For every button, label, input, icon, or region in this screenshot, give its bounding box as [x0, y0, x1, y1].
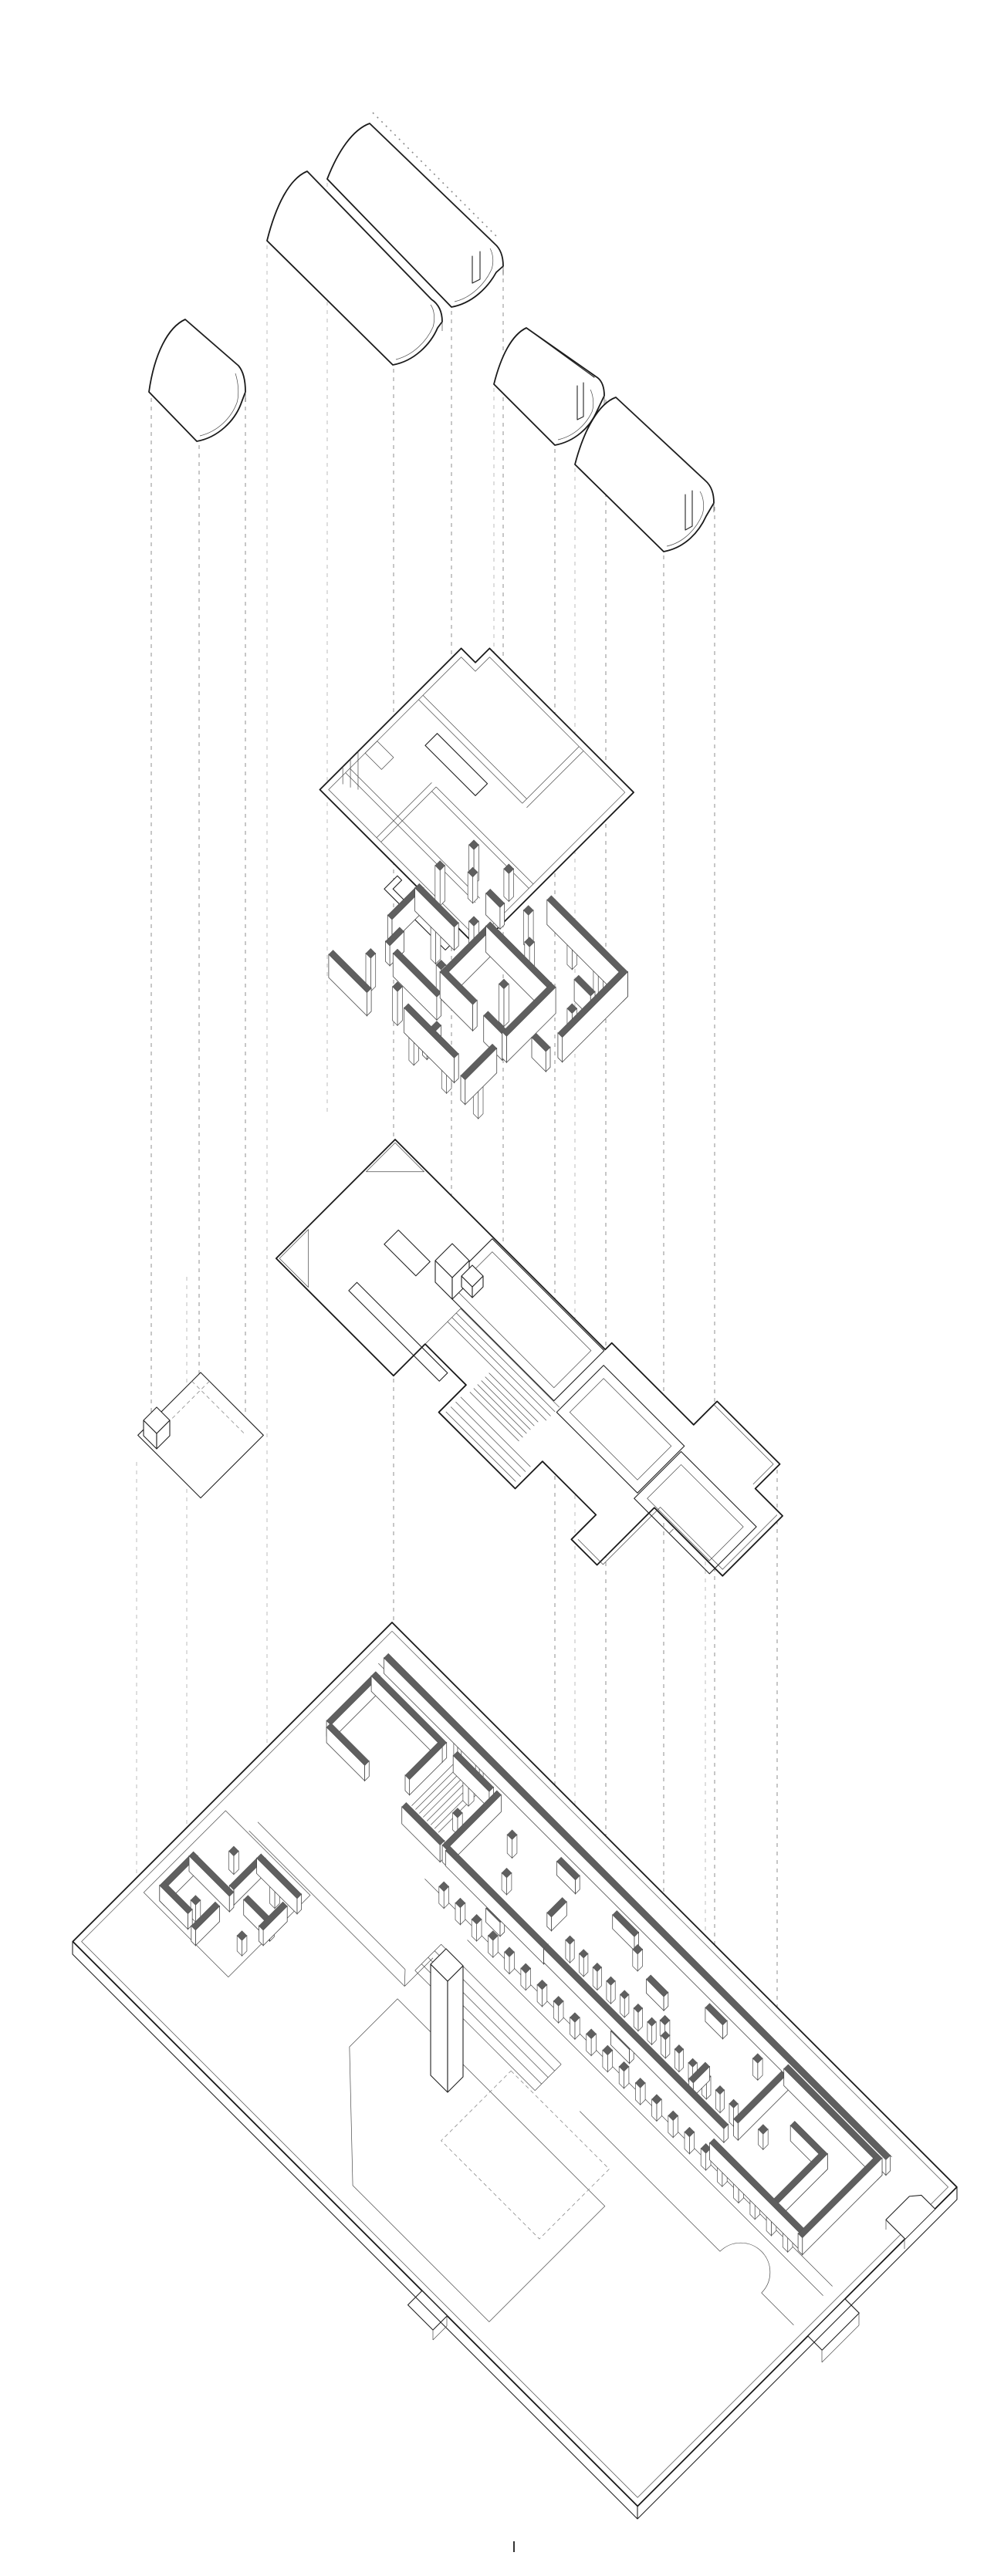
column: [499, 979, 509, 1027]
column: [393, 981, 403, 1025]
site-plan: [59, 1622, 971, 2534]
column: [652, 2095, 662, 2122]
column: [489, 1931, 499, 1958]
column: [507, 1830, 517, 1859]
column: [468, 867, 478, 903]
column: [759, 2125, 769, 2150]
roof-plan: [303, 634, 634, 965]
annex-plate: [138, 1372, 264, 1498]
column: [715, 2085, 724, 2112]
column: [472, 1914, 482, 1941]
plaza-tower: [431, 1949, 463, 2092]
column: [603, 2045, 613, 2072]
drawing-sheet: Exploded axonometric architectural drawi…: [0, 0, 994, 2576]
column: [633, 1944, 643, 1971]
column: [635, 2078, 645, 2105]
column: [237, 1931, 247, 1956]
column: [661, 2031, 670, 2058]
vault-roofs: [149, 113, 714, 552]
column: [587, 2029, 597, 2056]
column: [455, 1898, 465, 1925]
wall-segment: [329, 950, 371, 1015]
column: [607, 1977, 615, 2004]
column: [580, 1950, 588, 1977]
column: [537, 1980, 547, 2007]
column: [619, 2061, 629, 2088]
column: [229, 1846, 239, 1875]
column: [505, 1947, 515, 1974]
column: [685, 2127, 695, 2154]
column: [701, 2143, 711, 2170]
column: [674, 2044, 683, 2071]
column: [521, 1963, 531, 1990]
vault-small-left: [149, 319, 245, 441]
column: [566, 1936, 574, 1963]
exploded-axonometric-drawing: Exploded axonometric architectural drawi…: [0, 0, 994, 2576]
column: [435, 861, 445, 906]
column: [620, 1990, 629, 2017]
column: [502, 1868, 512, 1895]
column: [439, 1882, 449, 1909]
column: [504, 864, 514, 902]
wall-segment: [532, 1033, 550, 1072]
column: [752, 2054, 762, 2081]
column: [553, 1996, 563, 2023]
column: [593, 1963, 601, 1990]
column: [570, 2013, 580, 2040]
column: [647, 2017, 656, 2044]
column: [668, 2111, 678, 2138]
floor-plate: [276, 1109, 807, 1640]
vault-right-lower: [575, 397, 714, 552]
column: [634, 2004, 642, 2031]
